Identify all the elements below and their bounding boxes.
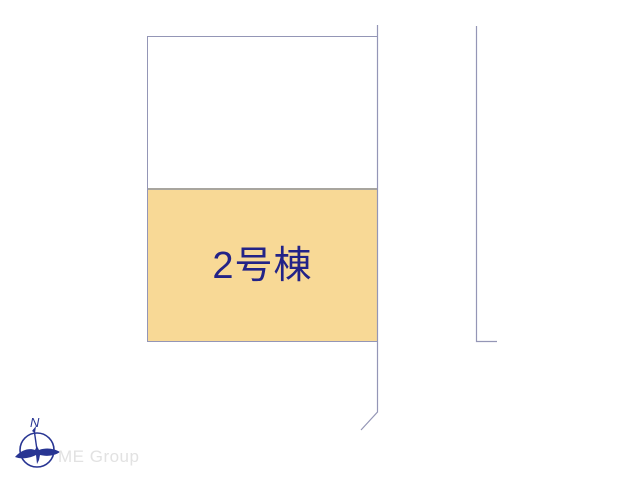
boundary-line-far-right [477,26,498,342]
compass-north-label: N [30,415,40,430]
compass-north-icon: N [12,414,64,472]
watermark-text: ME Group [58,447,139,467]
building-2-area: 2号棟 [148,190,377,341]
plot-upper-area [148,37,377,188]
site-plan-canvas: 2号棟 N ME Group [0,0,640,480]
building-2-label: 2号棟 [212,247,312,285]
plot-boundary: 2号棟 [147,36,378,342]
